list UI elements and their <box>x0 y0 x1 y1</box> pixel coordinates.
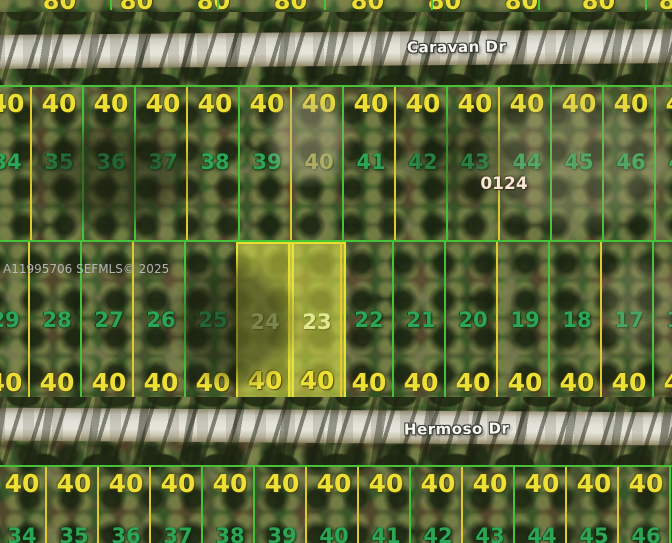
lot-dimension-label: 40 <box>136 91 190 116</box>
lot-number-label: 37 <box>151 526 205 543</box>
lot-number-label: 19 <box>498 310 552 331</box>
lot-number-label: 41 <box>359 526 413 543</box>
parcel-line <box>645 0 647 10</box>
lot-number-label: 28 <box>30 310 84 331</box>
lot-band-bottom: 40 34 40 35 40 36 40 37 40 38 40 39 40 4… <box>0 465 672 543</box>
lot-number-label: 42 <box>396 152 450 173</box>
road-hermoso-label: Hermoso Dr <box>404 419 510 438</box>
lot-parcel: 40 35 <box>30 87 86 242</box>
lot-parcel: 40 41 <box>357 467 413 543</box>
lot-number-label: 16 <box>654 310 672 331</box>
lot-dimension-label: 40 <box>186 370 240 395</box>
lot-parcel: 40 42 <box>409 467 465 543</box>
lot-parcel: 40 46 <box>602 87 658 242</box>
parcel-line <box>538 0 540 10</box>
lot-parcel: 40 36 <box>82 87 138 242</box>
lot-dimension-label: 40 <box>344 91 398 116</box>
lot-dimension-label: 40 <box>463 471 517 496</box>
lot-parcel: 80 <box>249 0 330 12</box>
lot-parcel: 80 <box>557 0 638 12</box>
lot-parcel: 40 42 <box>394 87 450 242</box>
block-number-label: 0124 <box>468 174 540 194</box>
lot-dimension-label: 40 <box>99 471 153 496</box>
lot-parcel: 40 38 <box>186 87 242 242</box>
lot-number-label: 43 <box>463 526 517 543</box>
lot-dimension-label: 40 <box>240 91 294 116</box>
lot-number-label: 36 <box>99 526 153 543</box>
lot-parcel: 40 35 <box>45 467 101 543</box>
lot-dimension-label: 40 <box>47 471 101 496</box>
lot-number-label: 40 <box>292 152 346 173</box>
lot-dimension-label: 40 <box>84 91 138 116</box>
lot-dimension-label: 40 <box>359 471 413 496</box>
lot-number-label: 24 <box>238 312 292 333</box>
lot-parcel: 40 20 <box>444 242 500 399</box>
parcel-line <box>324 0 326 10</box>
lot-number-label: 44 <box>500 152 554 173</box>
road-pavement <box>0 408 672 446</box>
lot-number-label: 40 <box>307 526 361 543</box>
lot-number-label: 46 <box>619 526 672 543</box>
road-caravan: Caravan Dr <box>0 12 672 85</box>
lot-parcel: 40 36 <box>97 467 153 543</box>
lot-parcel: 80 <box>172 0 253 12</box>
lot-parcel: 40 43 <box>446 87 502 242</box>
lot-parcel: 40 45 <box>565 467 621 543</box>
lot-number-label: 34 <box>0 152 34 173</box>
lot-parcel: 40 39 <box>253 467 309 543</box>
lot-number-label: 34 <box>0 526 49 543</box>
lot-dimension-label: 40 <box>394 370 448 395</box>
road-hermoso: Hermoso Dr <box>0 397 672 465</box>
lot-number-label: 43 <box>448 152 502 173</box>
lot-dimension-label: 40 <box>151 471 205 496</box>
lot-parcel: 40 23 <box>288 242 346 399</box>
lot-parcel: 40 39 <box>238 87 294 242</box>
parcel-line <box>217 0 219 10</box>
lot-number-label: 45 <box>567 526 621 543</box>
lot-parcel: 80 <box>95 0 176 12</box>
lot-parcel: 40 17 <box>600 242 656 399</box>
lot-dimension-label: 40 <box>342 370 396 395</box>
lot-parcel: 40 43 <box>461 467 517 543</box>
lot-parcel: 40 34 <box>0 467 49 543</box>
lot-parcel: 40 44 <box>513 467 569 543</box>
lot-number-label: 18 <box>550 310 604 331</box>
lot-dimension-label: 40 <box>188 91 242 116</box>
lot-number-label: 46 <box>604 152 658 173</box>
lot-dimension-label: 40 <box>238 368 292 393</box>
lot-number-label: 21 <box>394 310 448 331</box>
parcel-line <box>431 0 433 10</box>
lot-number-label: 39 <box>240 152 294 173</box>
lot-dimension-label: 40 <box>0 471 49 496</box>
lot-dimension-label: 40 <box>134 370 188 395</box>
lot-parcel: 40 25 <box>184 242 240 399</box>
lot-dimension-label: 40 <box>619 471 672 496</box>
lot-parcel: 40 19 <box>496 242 552 399</box>
lot-dimension-label: 40 <box>602 370 656 395</box>
lot-parcel: 40 45 <box>550 87 606 242</box>
lot-dimension-label: 40 <box>290 368 344 393</box>
lot-dimension-label: 40 <box>498 370 552 395</box>
lot-dimension-label: 40 <box>500 91 554 116</box>
lot-number-label: 45 <box>552 152 606 173</box>
plat-map-aerial-image: 80 80 80 80 80 80 80 80 80 <box>0 0 672 543</box>
lot-band-top: 40 34 40 35 40 36 40 37 40 38 40 39 40 4… <box>0 85 672 242</box>
lot-dimension-label: 40 <box>411 471 465 496</box>
lot-dimension-label: 40 <box>656 91 672 116</box>
lot-dimension-label: 40 <box>654 370 672 395</box>
lot-parcel: 80 <box>403 0 484 12</box>
lot-number-label: 47 <box>656 152 672 173</box>
lot-number-label: 44 <box>515 526 569 543</box>
lot-dimension-label: 40 <box>552 91 606 116</box>
lot-number-label: 42 <box>411 526 465 543</box>
lot-dimension-label: 40 <box>255 471 309 496</box>
lot-number-label: 25 <box>186 310 240 331</box>
lot-parcel: 40 40 <box>290 87 346 242</box>
lot-dimension-label: 40 <box>604 91 658 116</box>
lot-parcel: 40 18 <box>548 242 604 399</box>
lot-parcel: 40 22 <box>340 242 396 399</box>
lot-number-label: 22 <box>342 310 396 331</box>
lot-parcel: 40 44 <box>498 87 554 242</box>
lot-parcel: 40 37 <box>149 467 205 543</box>
lot-parcel: 80 <box>634 0 672 12</box>
lot-parcel: 40 46 <box>617 467 672 543</box>
lot-parcel: 40 41 <box>342 87 398 242</box>
lot-number-label: 37 <box>136 152 190 173</box>
mls-watermark: A11995706 SEFMLS© 2025 <box>3 262 169 276</box>
lot-parcel: 80 <box>480 0 561 12</box>
lot-parcel: 40 38 <box>201 467 257 543</box>
lot-number-label: 35 <box>32 152 86 173</box>
lot-dimension-label: 40 <box>82 370 136 395</box>
lot-parcel: 80 <box>326 0 407 12</box>
road-caravan-label: Caravan Dr <box>407 37 506 56</box>
lot-dimension-label: 40 <box>515 471 569 496</box>
road-pavement <box>0 29 672 69</box>
lot-number-label: 36 <box>84 152 138 173</box>
lot-dimension-label: 40 <box>448 91 502 116</box>
lot-parcel: 40 47 <box>654 87 672 242</box>
lot-parcel: 40 21 <box>392 242 448 399</box>
lot-number-label: 23 <box>290 312 344 333</box>
lot-dimension-label: 40 <box>550 370 604 395</box>
lot-dimension-label: 40 <box>307 471 361 496</box>
lot-number-label: 35 <box>47 526 101 543</box>
lot-dimension-label: 40 <box>567 471 621 496</box>
lot-parcel: 40 24 <box>236 242 294 399</box>
lot-dimension-label: 40 <box>396 91 450 116</box>
lot-dimension-label: 40 <box>32 91 86 116</box>
lot-number-label: 41 <box>344 152 398 173</box>
lot-number-label: 17 <box>602 310 656 331</box>
lot-number-label: 27 <box>82 310 136 331</box>
lot-dimension-label: 40 <box>446 370 500 395</box>
lot-number-label: 38 <box>203 526 257 543</box>
lot-parcel: 80 <box>18 0 99 12</box>
lot-number-label: 26 <box>134 310 188 331</box>
lot-dimension-label: 40 <box>0 91 34 116</box>
lot-parcel: 40 34 <box>0 87 34 242</box>
lot-dimension-label: 40 <box>203 471 257 496</box>
parcel-line <box>110 0 112 10</box>
lot-number-label: 20 <box>446 310 500 331</box>
lot-parcel: 40 16 <box>652 242 672 399</box>
lot-dimension-label: 40 <box>30 370 84 395</box>
lot-dimension-label: 40 <box>292 91 346 116</box>
lot-parcel: 40 40 <box>305 467 361 543</box>
lot-number-label: 39 <box>255 526 309 543</box>
lot-number-label: 38 <box>188 152 242 173</box>
lot-parcel: 40 37 <box>134 87 190 242</box>
